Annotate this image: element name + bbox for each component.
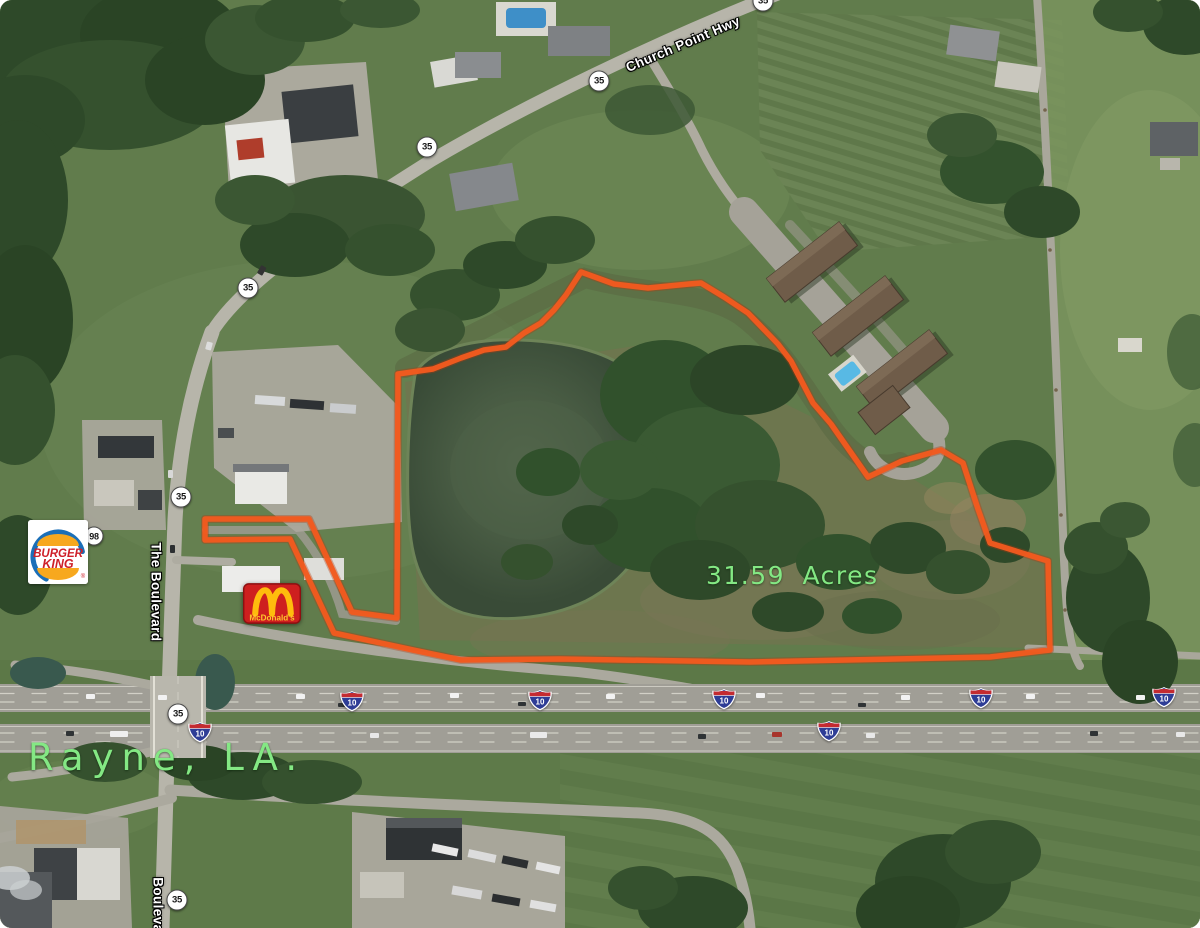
interstate-10-number: 10 bbox=[977, 696, 986, 705]
interstate-10-shield: 10 bbox=[817, 721, 842, 742]
route-shield-la35: 35 bbox=[167, 890, 188, 911]
route-shield-number: 35 bbox=[172, 895, 182, 906]
route-shield-number: 98 bbox=[89, 531, 98, 541]
route-shield-number: 35 bbox=[594, 76, 604, 87]
satellite-imagery bbox=[0, 0, 1200, 928]
route-shield-number: 35 bbox=[422, 142, 432, 153]
mcdonalds-logo: McDonald's bbox=[243, 583, 301, 624]
route-shield-number: 35 bbox=[176, 492, 186, 503]
city-label: Rayne, LA. bbox=[28, 736, 305, 779]
aerial-property-map: Church Point Hwy The Boulevard Boulevard… bbox=[0, 0, 1200, 928]
bk-registered-mark: ® bbox=[81, 573, 86, 580]
bk-word-king: KING bbox=[42, 557, 74, 571]
interstate-10-shield: 10 bbox=[1152, 687, 1177, 708]
acreage-label: 31.59 Acres bbox=[706, 561, 879, 590]
interstate-10-shield: 10 bbox=[528, 690, 553, 711]
route-shield-la35: 35 bbox=[168, 704, 189, 725]
interstate-10-number: 10 bbox=[825, 729, 834, 738]
interstate-10-number: 10 bbox=[1160, 695, 1169, 704]
mcdonalds-wordmark: McDonald's bbox=[249, 613, 295, 622]
route-shield-number: 35 bbox=[173, 709, 183, 720]
interstate-10-shield: 10 bbox=[340, 691, 365, 712]
route-shield-number: 35 bbox=[243, 283, 253, 294]
interstate-10-shield: 10 bbox=[969, 688, 994, 709]
route-shield-la35: 35 bbox=[417, 137, 438, 158]
road-label-the-boulevard: The Boulevard bbox=[149, 543, 164, 642]
interstate-10-number: 10 bbox=[720, 697, 729, 706]
route-shield-la35: 35 bbox=[238, 278, 259, 299]
interstate-10-number: 10 bbox=[348, 699, 357, 708]
interstate-10-number: 10 bbox=[536, 698, 545, 707]
interstate-10-shield: 10 bbox=[712, 689, 737, 710]
road-label-boulevard-south: Boulevard bbox=[151, 877, 166, 928]
route-shield-la35: 35 bbox=[589, 71, 610, 92]
burger-king-logo: BURGER KING ® bbox=[28, 520, 88, 584]
route-shield-la35: 35 bbox=[171, 487, 192, 508]
route-shield-number: 35 bbox=[758, 0, 768, 7]
